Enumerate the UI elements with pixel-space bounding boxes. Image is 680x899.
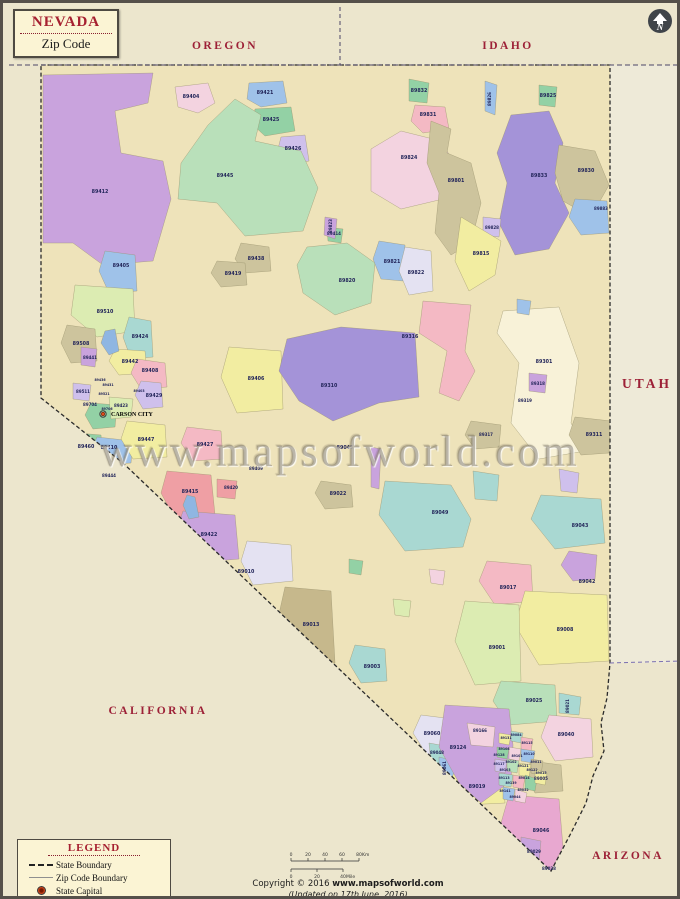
zip-region [429,569,445,585]
zip-code-label: 89438 [248,256,265,262]
zip-code-label: 89084 [510,733,522,737]
zip-code-label: 89706 [101,407,113,411]
zip-code-label: 89008 [557,627,574,633]
zip-code-label: 89510 [97,309,114,315]
zip-code-label: 89128 [493,753,505,757]
svg-text:0: 0 [290,852,293,858]
zip-code-label: 89301 [536,359,553,365]
zip-code-label: 89415 [182,489,199,495]
map-canvas: CARSON CITY 8941289404894218942589426894… [3,3,680,899]
state-label-arizona: ARIZONA [592,850,664,862]
zip-code-label: 89822 [408,270,425,276]
zip-code-label: 89431 [102,383,113,387]
map-title-box: NEVADA Zip Code [13,9,119,58]
zip-code-label: 89815 [473,251,490,257]
zip-code-label: 89460 [78,444,95,450]
zip-code-label: 89316 [402,334,419,340]
zip-code-label: 89048 [430,750,444,755]
zip-code-label: 89409 [249,466,263,471]
svg-text:N: N [656,22,664,32]
zip-code-label: 89043 [572,523,589,529]
state-label-utah: UTAH [622,376,672,391]
zip-code-label: 89826 [487,92,492,106]
zip-region [371,447,381,489]
zip-code-label: 89423 [114,403,128,408]
zip-code-label: 89508 [73,341,90,347]
zip-code-label: 89101 [511,754,522,758]
zip-code-label: 89060 [424,731,441,737]
zip-code-label: 89045 [337,445,354,451]
zip-code-label: 89442 [122,359,139,365]
map-title: NEVADA [20,14,112,34]
legend-item-state-capital: State Capital [18,884,170,897]
zip-code-label: 89410 [101,445,118,451]
zip-code-label: 89441 [83,355,97,360]
svg-text:40: 40 [322,852,328,858]
zip-code-label: 89061 [442,761,447,775]
zip-code-label: 89825 [540,93,557,99]
zip-code-label: 89831 [420,112,437,118]
state-boundary-symbol [29,864,53,866]
zip-code-label: 89824 [401,155,418,161]
zip-code-label: 89022 [330,491,347,497]
legend-title: LEGEND [48,842,140,856]
zip-code-label: 89408 [142,368,159,374]
zip-code-label: 89019 [469,784,486,790]
zip-code-label: 89025 [526,698,543,704]
zip-code-label: 89102 [505,760,516,764]
zip-code-label: 89015 [535,771,546,775]
zip-code-label: 89405 [113,263,130,269]
zip-code-label: 89124 [450,745,467,751]
zip-code-label: 89425 [263,117,280,123]
zip-code-label: 89311 [586,432,603,438]
zip-code-label: 89317 [479,432,493,437]
zip-code-label: 89833 [531,173,548,179]
zip-code-label: 89017 [500,585,517,591]
zip-code-label: 89139 [505,781,517,785]
zip-region [393,599,411,617]
zip-code-label: 89427 [197,442,214,448]
legend-item-zip-boundary: Zip Code Boundary [18,871,170,884]
updated-text: (Updated on 17th June, 2016) [213,890,483,899]
zip-code-label: 89412 [92,189,109,195]
zip-code-label: 89820 [339,278,356,284]
zip-code-label: 89028 [542,866,556,871]
zip-code-label: 89318 [531,381,545,386]
zip-code-label: 89046 [533,828,550,834]
zip-code-label: 89049 [432,510,449,516]
zip-code-label: 89823 [328,219,333,233]
zip-code-label: 89521 [98,392,109,396]
zip-code-label: 89113 [498,776,509,780]
zip-code-label: 89421 [257,90,274,96]
legend-box: LEGEND State Boundary Zip Code Boundary … [17,839,171,899]
zip-code-label: 89014 [518,776,530,780]
zip-region [467,723,495,747]
map-subtitle: Zip Code [15,36,117,52]
zip-code-label: 89704 [83,402,97,407]
state-capital-symbol [37,886,46,895]
zip-code-label: 89830 [578,168,595,174]
zip-code-label: 89013 [303,622,320,628]
zip-code-label: 89110 [523,752,535,756]
copyright: Copyright © 2016 www.mapsofworld.com (Up… [213,879,483,899]
zip-code-label: 89310 [321,383,338,389]
zip-code-label: 89319 [518,398,532,403]
zip-code-label: 89044 [509,795,521,799]
zip-code-label: 89005 [534,776,548,781]
compass-north-icon: N [648,9,672,33]
zip-code-label: 89403 [133,389,144,393]
nevada-zip-code-map: CARSON CITY 8941289404894218942589426894… [0,0,680,899]
zip-code-label: 89052 [517,788,528,792]
zip-code-label: 89445 [217,173,234,179]
copyright-site: www.mapsofworld.com [332,879,443,889]
zip-code-label: 89042 [579,579,596,585]
zip-code-label: 89511 [76,389,90,394]
zip-code-label: 89003 [364,664,381,670]
zip-code-label: 89001 [489,645,506,651]
zip-code-label: 89108 [498,747,510,751]
zip-code-label: 89821 [384,259,401,265]
zip-code-label: 89117 [493,762,504,766]
zip-code-label: 89828 [485,225,499,230]
zip-code-label: 89103 [499,768,510,772]
zip-code-label: 89166 [473,728,487,733]
capital-label: CARSON CITY [111,412,154,418]
zip-code-label: 89404 [183,94,200,100]
zip-code-label: 89436 [94,378,106,382]
zip-code-label: 89429 [146,393,163,399]
copyright-text: Copyright © 2016 [252,879,332,889]
zip-code-label: 89447 [138,437,155,443]
zip-region [349,559,363,575]
zip-code-label: 89406 [248,376,265,382]
zip-code-boundary-symbol [29,877,53,878]
legend-item-state-boundary: State Boundary [18,858,170,871]
zip-code-label: 89424 [132,334,149,340]
zip-code-label: 89040 [558,732,575,738]
zip-code-label: 89420 [224,485,238,490]
zip-code-label: 89426 [285,146,302,152]
zip-code-label: 89422 [201,532,218,538]
svg-text:Km: Km [362,852,369,858]
zip-code-label: 89021 [565,699,570,713]
zip-region [473,471,499,501]
zip-code-label: 89141 [499,789,510,793]
zip-code-label: 89115 [521,741,532,745]
zip-code-label: 89419 [225,271,242,277]
zip-code-label: 89010 [238,569,255,575]
zip-region [559,693,581,715]
zip-code-label: 89444 [102,473,116,478]
state-label-california: CALIFORNIA [108,705,207,717]
zip-code-label: 89832 [411,88,428,94]
scale-bar: 020406080Km02040Mile [290,852,370,880]
zip-region [517,299,531,315]
svg-text:60: 60 [339,852,345,858]
zip-region [559,469,579,493]
utah-area [610,65,680,663]
zip-code-label: 89801 [448,178,465,184]
svg-text:20: 20 [305,852,311,858]
zip-code-label: 89011 [530,760,541,764]
state-label-oregon: OREGON [192,40,258,52]
zip-code-label: 89029 [527,849,541,854]
zip-code-label: 89883 [594,206,608,211]
state-label-idaho: IDAHO [482,40,533,52]
